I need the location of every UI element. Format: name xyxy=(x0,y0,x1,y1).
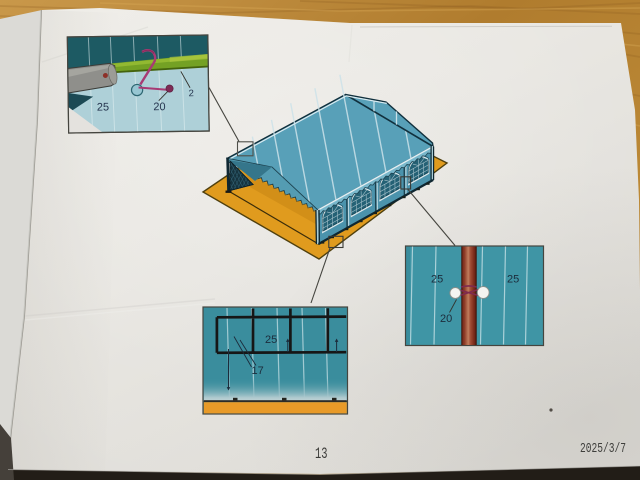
svg-text:2025/3/7: 2025/3/7 xyxy=(580,441,626,457)
svg-text:25: 25 xyxy=(507,274,519,286)
svg-text:25: 25 xyxy=(431,274,443,286)
svg-text:20: 20 xyxy=(440,313,452,325)
svg-text:13: 13 xyxy=(315,445,328,463)
svg-text:25: 25 xyxy=(265,334,277,346)
svg-text:20: 20 xyxy=(153,101,165,113)
svg-text:2: 2 xyxy=(189,88,194,99)
svg-text:25: 25 xyxy=(97,101,109,113)
svg-text:17: 17 xyxy=(252,365,264,377)
